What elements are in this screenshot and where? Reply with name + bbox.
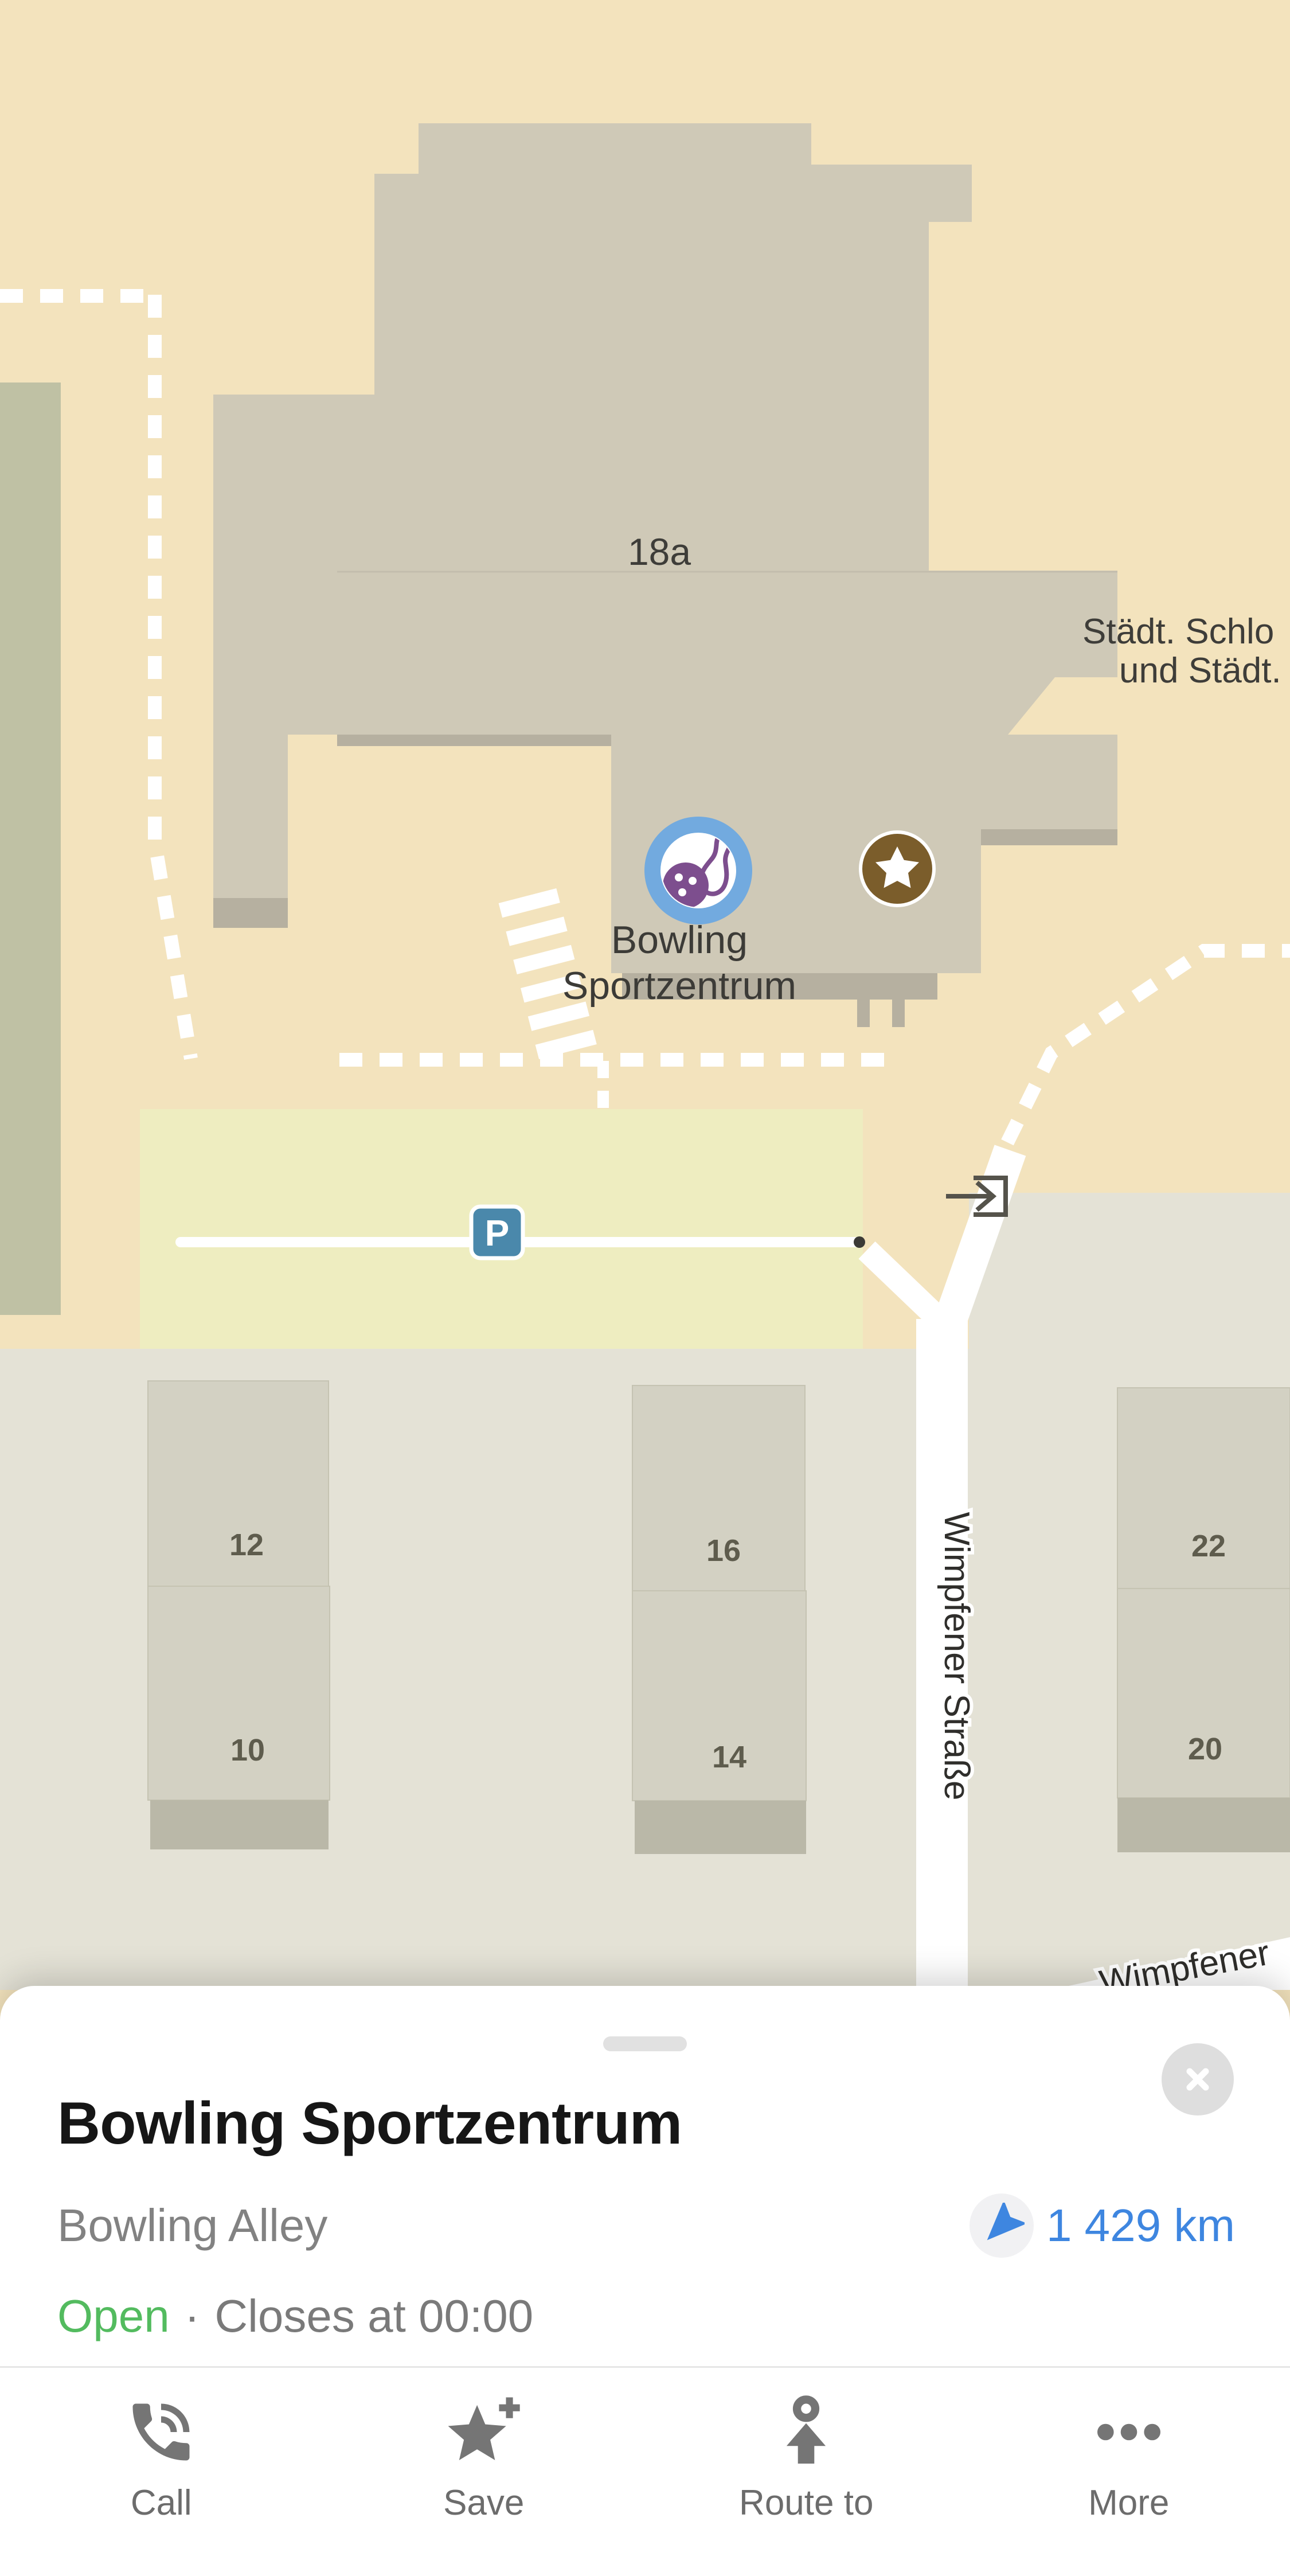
sheet-drag-handle[interactable] xyxy=(603,2036,687,2051)
house-number: 16 xyxy=(706,1533,741,1568)
house-number: 10 xyxy=(230,1733,265,1767)
more-button[interactable]: More xyxy=(968,2368,1290,2576)
closes-at: Closes at 00:00 xyxy=(214,2290,533,2343)
house-number: 20 xyxy=(1188,1732,1222,1766)
parking-letter: P xyxy=(485,1212,510,1254)
star-poi-icon[interactable] xyxy=(861,832,934,905)
place-title: Bowling Sportzentrum xyxy=(57,2093,682,2155)
phone-icon xyxy=(123,2394,199,2470)
cut-label-line1: Städt. Schlo xyxy=(1082,612,1274,651)
star-plus-icon xyxy=(446,2394,522,2470)
parking-icon[interactable]: P xyxy=(471,1207,523,1258)
route-to-label: Route to xyxy=(739,2483,873,2523)
opening-hours: Open · Closes at 00:00 xyxy=(57,2290,533,2343)
place-category: Bowling Alley xyxy=(57,2199,327,2252)
cut-label-line2: und Städt. xyxy=(1119,651,1281,690)
save-button[interactable]: Save xyxy=(323,2368,646,2576)
route-icon xyxy=(768,2394,844,2470)
save-label: Save xyxy=(443,2483,524,2523)
direction-arrow-icon xyxy=(970,2193,1034,2258)
more-dots-icon xyxy=(1091,2394,1167,2470)
green-area xyxy=(0,383,61,1315)
house-number: 12 xyxy=(229,1528,264,1562)
houses xyxy=(148,1381,1290,1854)
status-separator: · xyxy=(185,2290,200,2343)
call-button[interactable]: Call xyxy=(0,2368,323,2576)
poi-label-line1: Bowling xyxy=(611,918,748,962)
bowling-poi-icon[interactable] xyxy=(644,817,752,924)
poi-label-line2: Sportzentrum xyxy=(562,964,796,1008)
house-number: 14 xyxy=(712,1740,746,1774)
close-button[interactable] xyxy=(1162,2043,1234,2116)
house-number: 22 xyxy=(1191,1529,1226,1563)
more-label: More xyxy=(1088,2483,1169,2523)
call-label: Call xyxy=(131,2483,192,2523)
map-canvas[interactable]: 18a Städt. Schlo und Städt. Bowling Spor… xyxy=(0,0,1290,1990)
street-label-vertical: Wimpfener Straße xyxy=(937,1512,976,1800)
open-status: Open xyxy=(57,2290,170,2343)
maps-app-screen: 18a Städt. Schlo und Städt. Bowling Spor… xyxy=(0,0,1290,2576)
place-detail-sheet: Bowling Sportzentrum Bowling Alley 1 429… xyxy=(0,1986,1290,2576)
distance-value: 1 429 km xyxy=(1046,2199,1235,2252)
close-icon xyxy=(1179,2061,1216,2098)
route-to-button[interactable]: Route to xyxy=(645,2368,968,2576)
distance-block: 1 429 km xyxy=(970,2193,1235,2258)
building-number-label: 18a xyxy=(628,530,691,573)
action-toolbar: Call Save Route to xyxy=(0,2368,1290,2576)
